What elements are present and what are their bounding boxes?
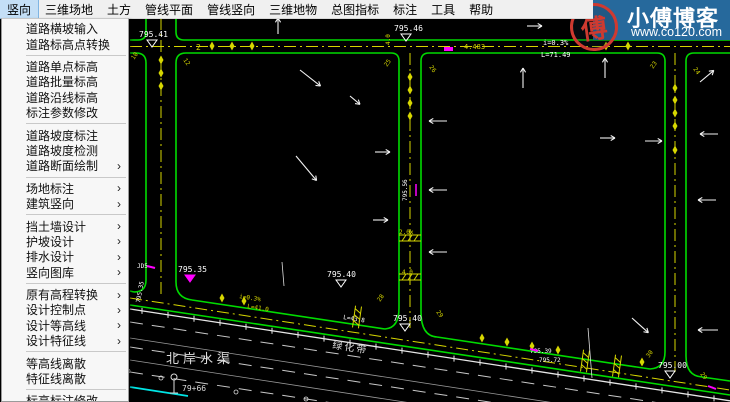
cad-label: 4.483 (464, 43, 485, 51)
menu-item-label: 竖向图库 (26, 264, 74, 281)
menu-item-label: 道路断面绘制 (26, 157, 98, 174)
menubar-item-8[interactable]: 标注 (386, 0, 424, 18)
cad-label: 795.00 (658, 361, 687, 370)
menu-separator (26, 177, 126, 178)
menu-separator (26, 214, 126, 215)
menu-item-17[interactable]: 护坡设计› (2, 234, 128, 249)
cad-label: 795.41 (139, 30, 168, 39)
submenu-arrow-icon: › (117, 196, 121, 211)
submenu-arrow-icon: › (117, 158, 121, 173)
menu-item-18[interactable]: 排水设计› (2, 249, 128, 264)
menu-item-label: 建筑竖向 (26, 195, 74, 212)
submenu-arrow-icon: › (117, 287, 121, 302)
submenu-arrow-icon: › (117, 249, 121, 264)
menubar: 竖向三维场地土方管线平面管线竖向三维地物总图指标标注工具帮助 (0, 0, 593, 19)
menu-item-27[interactable]: 特征线离散 (2, 371, 128, 386)
menu-item-label: 标高标注修改 (26, 392, 98, 402)
menu-separator (26, 389, 126, 390)
cad-label: JD5 (137, 263, 148, 270)
cad-label: 795.40 (393, 314, 422, 323)
menu-item-23[interactable]: 设计等高线› (2, 318, 128, 333)
menubar-item-2[interactable]: 三维场地 (38, 0, 100, 18)
menubar-item-10[interactable]: 帮助 (462, 0, 500, 18)
menu-separator (26, 123, 126, 124)
menubar-item-9[interactable]: 工具 (424, 0, 462, 18)
submenu-arrow-icon: › (117, 264, 121, 279)
menu-separator (26, 283, 126, 284)
cad-label: 4.0 (385, 34, 392, 45)
menu-item-1[interactable]: 道路横坡输入 (2, 21, 128, 36)
menu-item-11[interactable]: 道路断面绘制› (2, 158, 128, 173)
submenu-arrow-icon: › (117, 333, 121, 348)
menu-separator (26, 351, 126, 352)
menu-separator (26, 55, 126, 56)
menubar-item-3[interactable]: 土方 (100, 0, 138, 18)
cad-label: 795.72 (539, 357, 561, 364)
menu-item-7[interactable]: 标注参数修改 (2, 105, 128, 120)
menu-item-label: 特征线离散 (26, 370, 86, 387)
menubar-item-5[interactable]: 管线竖向 (200, 0, 262, 18)
cad-label: i=0.3% (543, 39, 569, 47)
menu-item-26[interactable]: 等高线离散 (2, 355, 128, 370)
submenu-arrow-icon: › (117, 234, 121, 249)
menu-item-24[interactable]: 设计特征线› (2, 333, 128, 348)
cad-label: 795.40 (327, 270, 356, 279)
menu-item-10[interactable]: 道路坡度检测 (2, 143, 128, 158)
menu-item-4[interactable]: 道路单点标高 (2, 59, 128, 74)
cad-label: L=71.49 (541, 51, 571, 59)
menu-item-14[interactable]: 建筑竖向› (2, 196, 128, 211)
submenu-arrow-icon: › (117, 218, 121, 233)
menu-item-21[interactable]: 原有高程转换› (2, 287, 128, 302)
cad-label: 795.35 (178, 265, 207, 274)
menu-item-label: 道路标高点转换 (26, 36, 110, 53)
menu-item-9[interactable]: 道路坡度标注 (2, 127, 128, 142)
dropdown-menu: 道路横坡输入道路标高点转换道路单点标高道路批量标高道路沿线标高标注参数修改道路坡… (1, 18, 129, 402)
menu-item-label: 标注参数修改 (26, 104, 98, 121)
menu-item-19[interactable]: 竖向图库› (2, 264, 128, 279)
menubar-item-7[interactable]: 总图指标 (324, 0, 386, 18)
menubar-item-6[interactable]: 三维地物 (262, 0, 324, 18)
menu-item-2[interactable]: 道路标高点转换 (2, 36, 128, 51)
menu-item-13[interactable]: 场地标注› (2, 181, 128, 196)
menu-item-16[interactable]: 挡土墙设计› (2, 218, 128, 233)
submenu-arrow-icon: › (117, 302, 121, 317)
submenu-arrow-icon: › (117, 181, 121, 196)
application-window: 795.41795.46i=0.3%L=71.494.4832795.40795… (0, 0, 730, 402)
cad-label: 795.56 (402, 179, 409, 201)
menu-item-6[interactable]: 道路沿线标高 (2, 90, 128, 105)
menu-item-22[interactable]: 设计控制点› (2, 302, 128, 317)
blog-url: www.co120.com (631, 25, 722, 39)
cad-label: 北岸水渠 (166, 352, 234, 367)
cad-label: 795.46 (394, 24, 423, 33)
menu-item-label: 设计特征线 (26, 332, 86, 349)
cad-label: 79+66 (182, 384, 206, 393)
menu-item-29[interactable]: 标高标注修改 (2, 393, 128, 402)
cad-element (316, 176, 317, 181)
cad-element (709, 70, 714, 71)
cad-label: 2 (196, 43, 201, 52)
menubar-item-4[interactable]: 管线平面 (138, 0, 200, 18)
menubar-item-1[interactable]: 竖向 (0, 0, 38, 18)
menu-item-5[interactable]: 道路批量标高 (2, 74, 128, 89)
submenu-arrow-icon: › (117, 318, 121, 333)
